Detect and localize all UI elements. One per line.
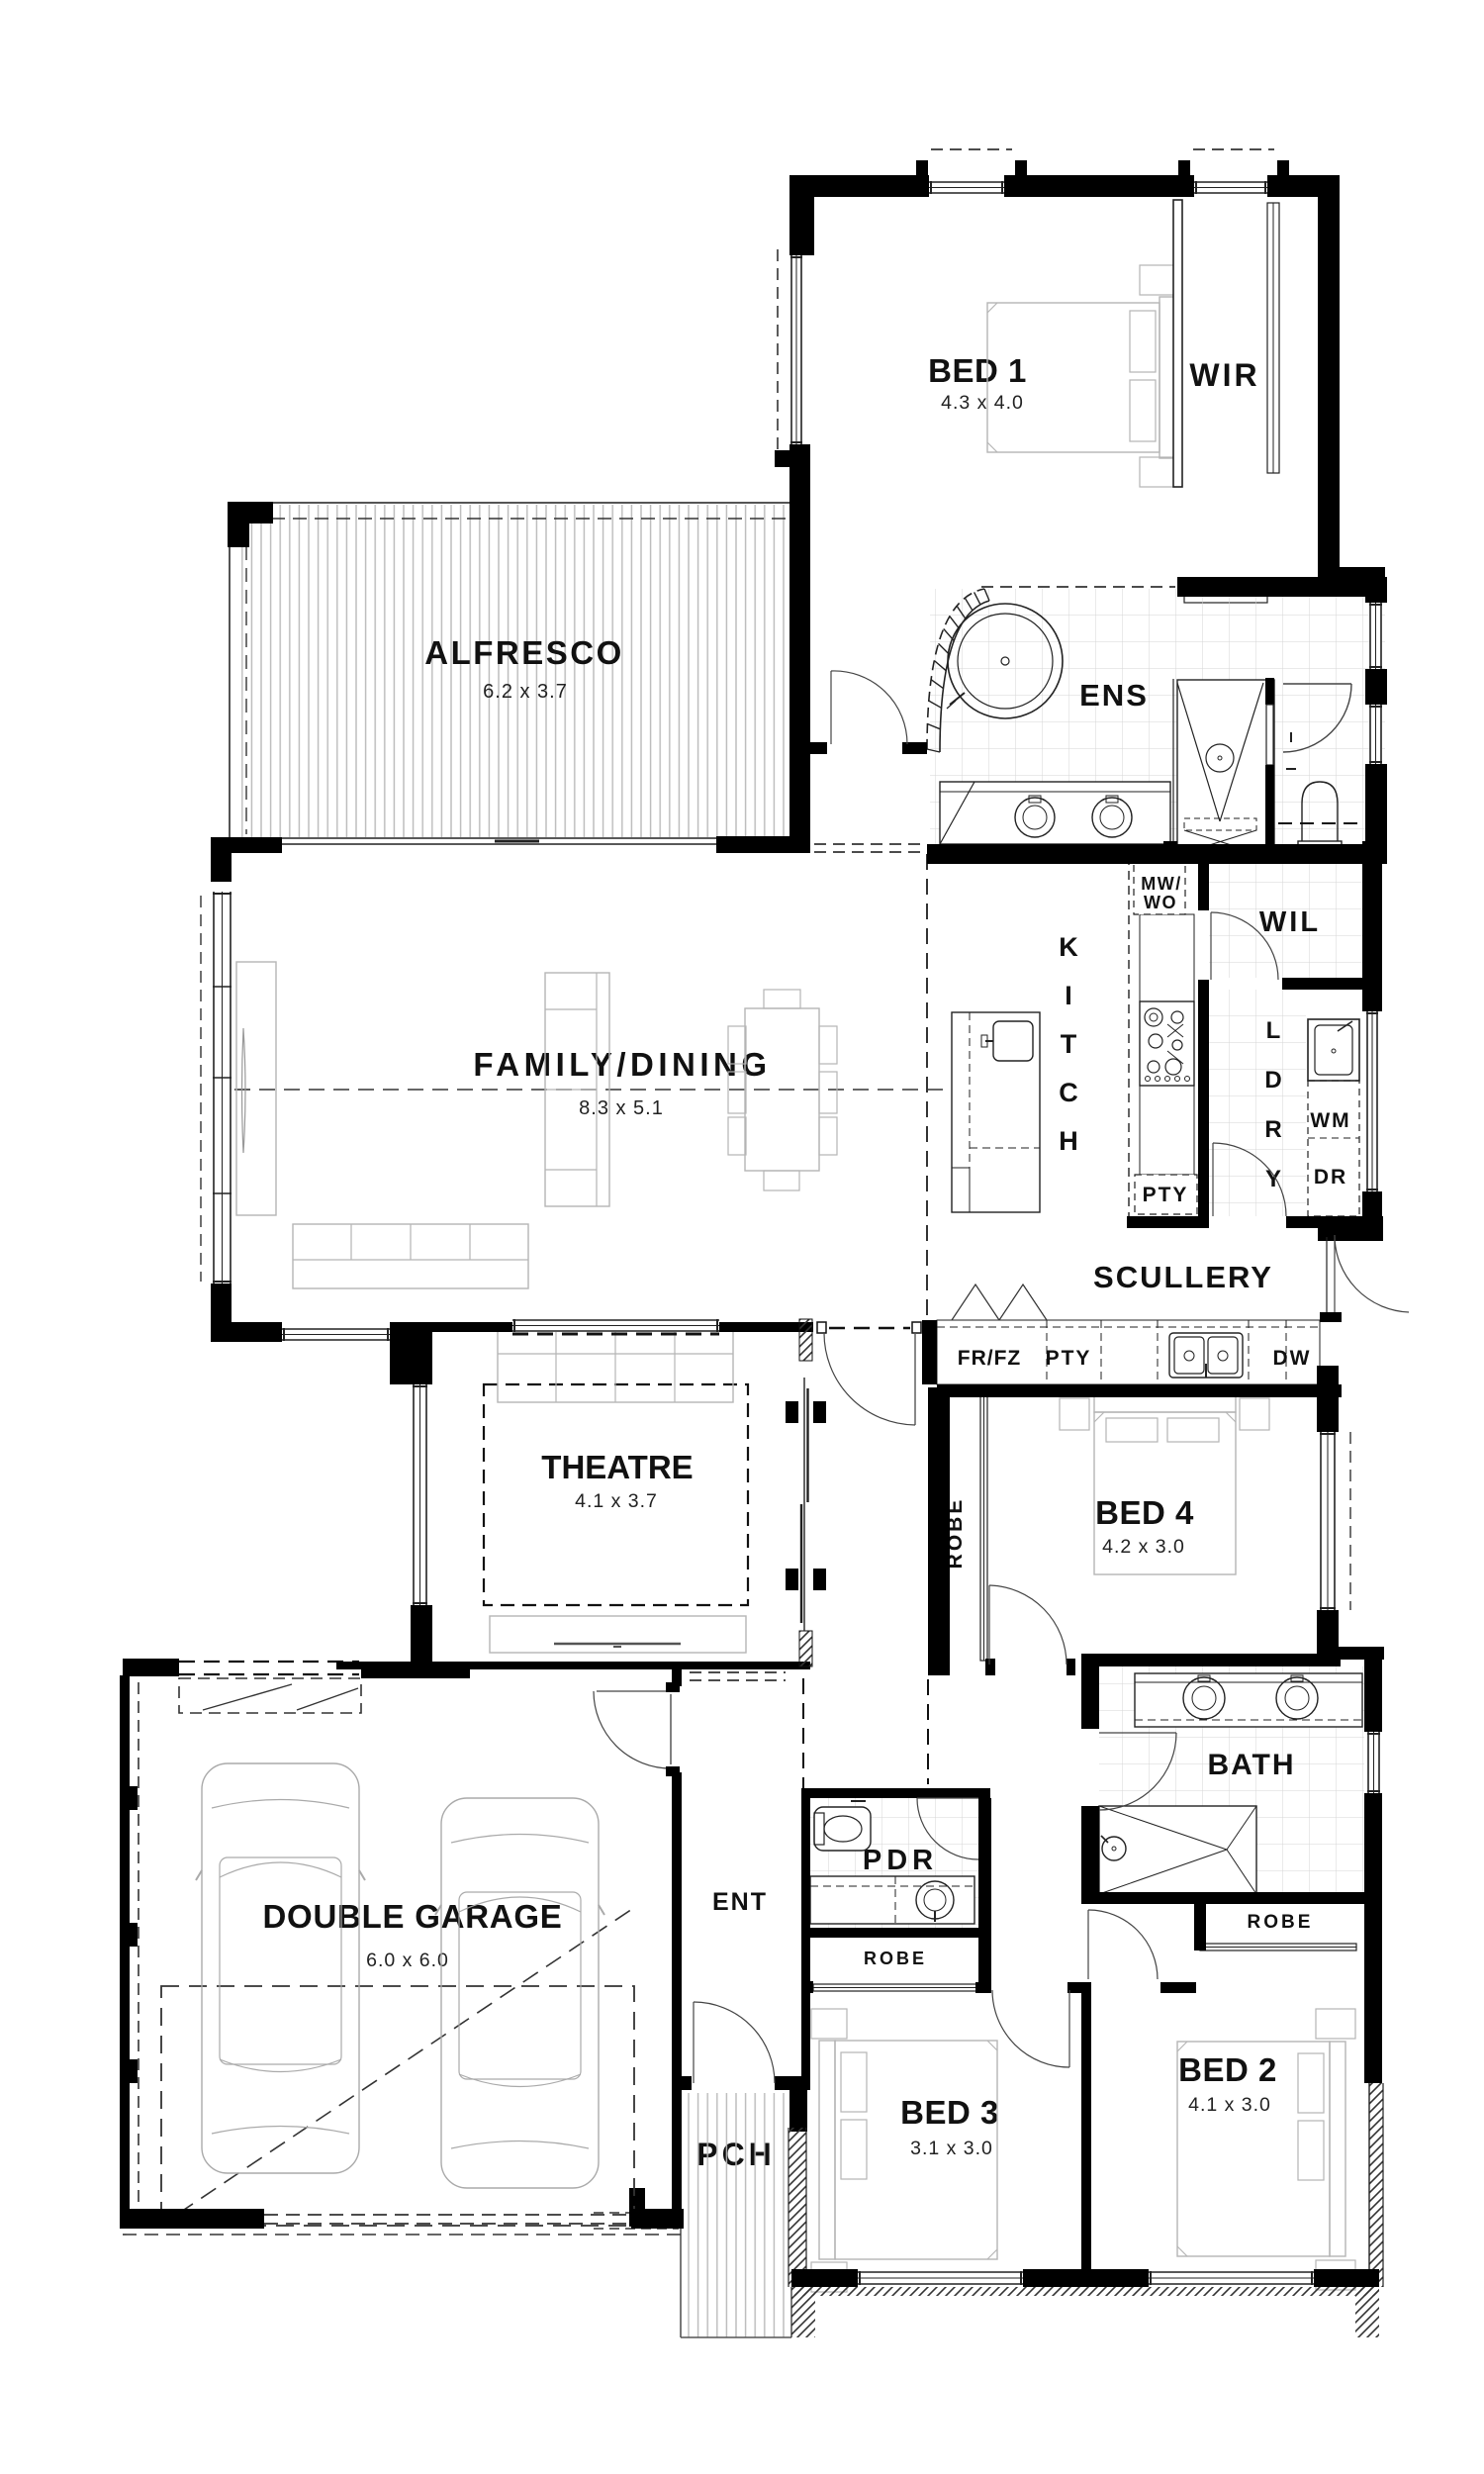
svg-text:DR: DR [1314, 1166, 1347, 1189]
svg-text:I: I [1065, 981, 1072, 1010]
svg-text:C: C [1059, 1078, 1078, 1107]
svg-text:3.1 x 3.0: 3.1 x 3.0 [910, 2138, 993, 2159]
svg-text:DW: DW [1273, 1347, 1312, 1370]
svg-text:6.0 x 6.0: 6.0 x 6.0 [366, 1950, 449, 1971]
svg-text:ROBE: ROBE [1248, 1912, 1314, 1933]
svg-text:MW/: MW/ [1141, 874, 1181, 894]
svg-text:4.1 x 3.7: 4.1 x 3.7 [575, 1490, 658, 1512]
svg-text:4.2 x 3.0: 4.2 x 3.0 [1102, 1536, 1185, 1558]
svg-text:Y: Y [1265, 1166, 1281, 1192]
svg-text:WIL: WIL [1259, 906, 1321, 938]
svg-text:THEATRE: THEATRE [541, 1449, 693, 1485]
svg-text:BATH: BATH [1207, 1749, 1295, 1781]
svg-text:FR/FZ: FR/FZ [958, 1347, 1021, 1370]
svg-text:8.3 x 5.1: 8.3 x 5.1 [579, 1097, 664, 1119]
svg-text:L: L [1266, 1017, 1281, 1044]
svg-text:ROBE: ROBE [864, 1949, 927, 1968]
svg-text:WM: WM [1310, 1109, 1350, 1132]
svg-text:PDR: PDR [863, 1845, 938, 1876]
svg-text:ALFRESCO: ALFRESCO [424, 634, 624, 671]
svg-text:SCULLERY: SCULLERY [1093, 1260, 1273, 1294]
svg-text:BED 4: BED 4 [1095, 1494, 1194, 1531]
svg-text:R: R [1264, 1116, 1281, 1143]
svg-text:WIR: WIR [1189, 357, 1259, 393]
svg-text:WO: WO [1144, 893, 1177, 912]
svg-text:T: T [1061, 1029, 1077, 1059]
svg-text:BED 3: BED 3 [900, 2094, 999, 2131]
svg-text:K: K [1059, 932, 1078, 962]
svg-text:ENT: ENT [712, 1888, 768, 1916]
svg-text:BED 1: BED 1 [928, 352, 1027, 389]
svg-text:D: D [1264, 1067, 1281, 1094]
svg-text:4.1 x 3.0: 4.1 x 3.0 [1188, 2094, 1271, 2116]
svg-text:ENS: ENS [1079, 678, 1149, 713]
svg-text:4.3 x 4.0: 4.3 x 4.0 [941, 392, 1024, 414]
svg-text:DOUBLE GARAGE: DOUBLE GARAGE [262, 1898, 562, 1935]
svg-text:FAMILY/DINING: FAMILY/DINING [473, 1046, 771, 1083]
svg-text:PTY: PTY [1143, 1184, 1189, 1206]
svg-text:H: H [1059, 1126, 1078, 1156]
svg-text:6.2 x 3.7: 6.2 x 3.7 [483, 681, 568, 703]
svg-text:BED 2: BED 2 [1178, 2051, 1277, 2088]
svg-text:PTY: PTY [1046, 1347, 1092, 1370]
